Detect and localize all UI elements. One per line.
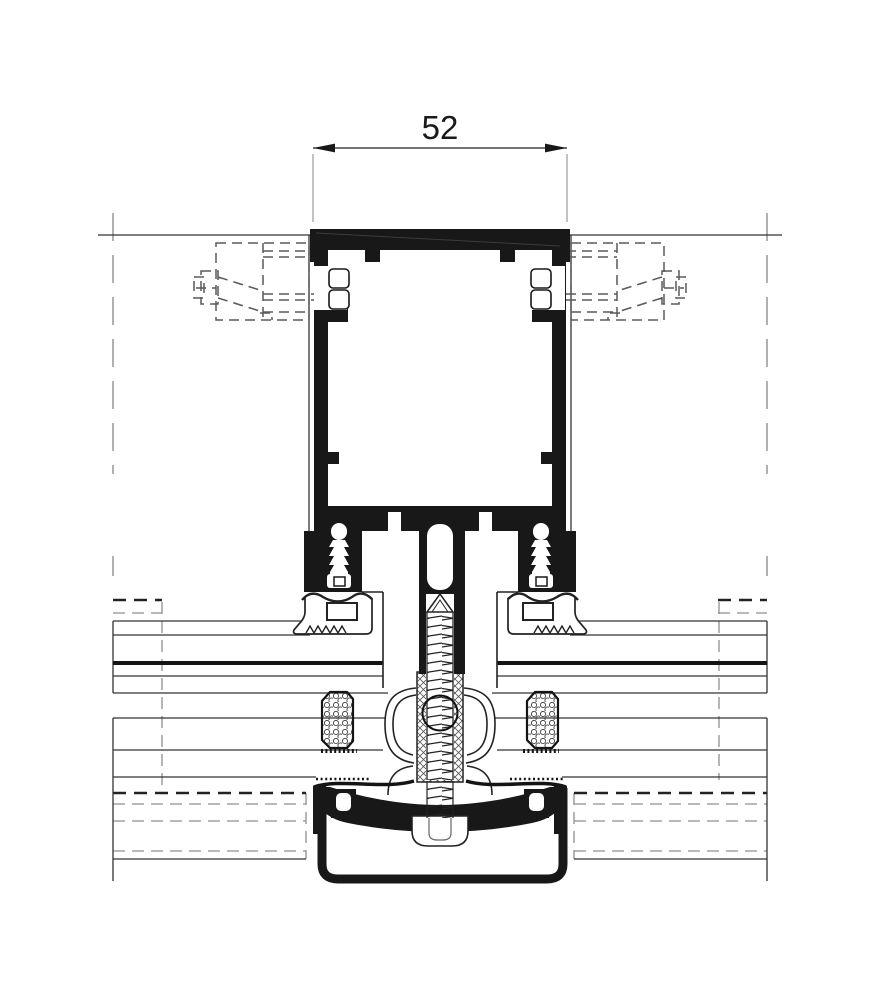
gasket-foot-slot — [334, 577, 345, 586]
screw-lower-threads — [427, 781, 453, 818]
wall-stub-left — [314, 309, 348, 322]
channel-clip-left-upper — [329, 269, 349, 288]
foam-gasket-left — [321, 692, 357, 751]
stem-slot — [427, 524, 453, 590]
profile-tab-right — [541, 452, 552, 464]
foam-gasket-block — [322, 692, 353, 748]
gasket-bulb — [331, 523, 347, 540]
wall-stub-right — [532, 309, 566, 322]
dimension-52: 52 — [313, 109, 567, 222]
channel-clip-left-lower — [329, 290, 349, 309]
foam-gasket-right — [523, 692, 559, 751]
cap-hook-slot-left — [336, 793, 351, 811]
anchor-bolt-right-outline — [566, 243, 686, 320]
setting-block-left — [294, 593, 373, 634]
foam-gasket-block — [527, 692, 558, 748]
profile-tab-left — [328, 452, 339, 464]
setting-block-hole — [327, 603, 357, 620]
anchor-bolt-right — [566, 243, 686, 320]
anchor-bolt-left — [194, 243, 314, 320]
channel-clip-right-upper — [531, 269, 551, 288]
screw-head-recess — [412, 816, 468, 846]
channel-clip-right-lower — [531, 290, 551, 309]
pressure-plate-assembly — [313, 779, 567, 879]
cap-hook-slot-right — [529, 793, 544, 811]
gasket-bulb — [533, 523, 549, 540]
drawing-sheet: 52 — [0, 0, 875, 1000]
setting-block-right — [508, 593, 587, 634]
section-detail-drawing: 52 — [0, 0, 875, 1000]
gasket-foot-slot — [536, 577, 547, 586]
profile-notch-right — [500, 250, 515, 262]
dimension-label: 52 — [422, 109, 459, 146]
fixing-screw — [423, 594, 458, 780]
dimension-extension-lines — [313, 154, 567, 222]
flange-slot-left — [388, 512, 401, 531]
dimension-arrow-left — [313, 144, 335, 153]
setting-block-hole — [523, 603, 553, 620]
flange-slot-right — [479, 512, 492, 531]
dimension-arrow-right — [545, 144, 567, 153]
anchor-bolt-left-outline — [194, 243, 314, 320]
profile-notch-left — [365, 250, 380, 262]
